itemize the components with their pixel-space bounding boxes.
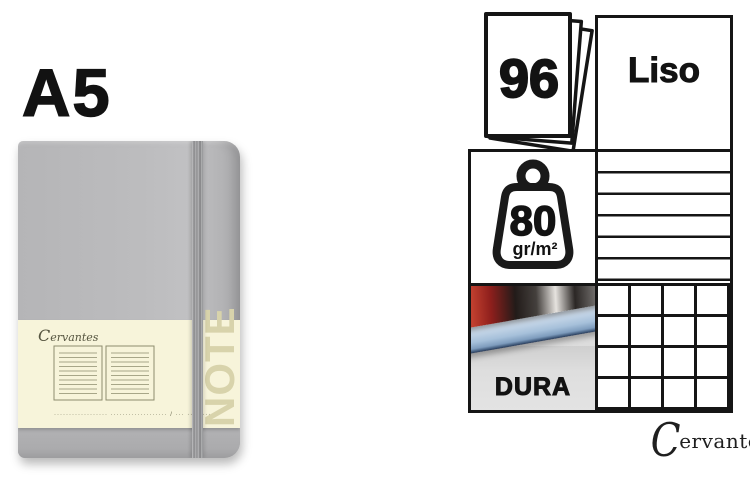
notebook-product-photo: Cervantes ·················· ···········… <box>18 141 240 458</box>
band-brand-logo: Cervantes <box>38 326 98 345</box>
band-fine-print: ·················· ··················· /… <box>54 412 214 418</box>
cover-type-label: DURA <box>471 373 595 402</box>
paper-weight-cell: 80 gr/m² <box>468 149 598 286</box>
brand-logo: Cervantes® <box>648 420 743 468</box>
note-vertical-text: NOTE <box>198 321 240 427</box>
product-image-canvas: A5 Cervantes ·················· ········… <box>0 0 750 481</box>
elastic-band <box>192 141 203 458</box>
squared-paper-icon <box>595 283 733 413</box>
notebook-belly-band: Cervantes ·················· ···········… <box>18 320 240 428</box>
brand-logo-text: ervantes <box>679 429 750 453</box>
sheets-count: 96 <box>499 49 559 109</box>
notebook-cover-bottom <box>18 428 240 458</box>
size-label: A5 <box>22 60 112 127</box>
open-notebook-illustration <box>52 344 156 410</box>
lined-paper-icon <box>595 149 733 286</box>
paper-type-cell: Liso <box>595 15 733 152</box>
brand-logo-initial: C <box>651 420 681 460</box>
paper-type-label: Liso <box>628 51 700 91</box>
cover-type-cell: DURA <box>468 283 598 413</box>
weight-value: 80 <box>510 197 557 244</box>
weight-icon: 80 gr/m² <box>481 159 585 277</box>
sheet-stack-icon: 96 <box>480 9 596 151</box>
weight-unit: gr/m² <box>513 239 558 259</box>
